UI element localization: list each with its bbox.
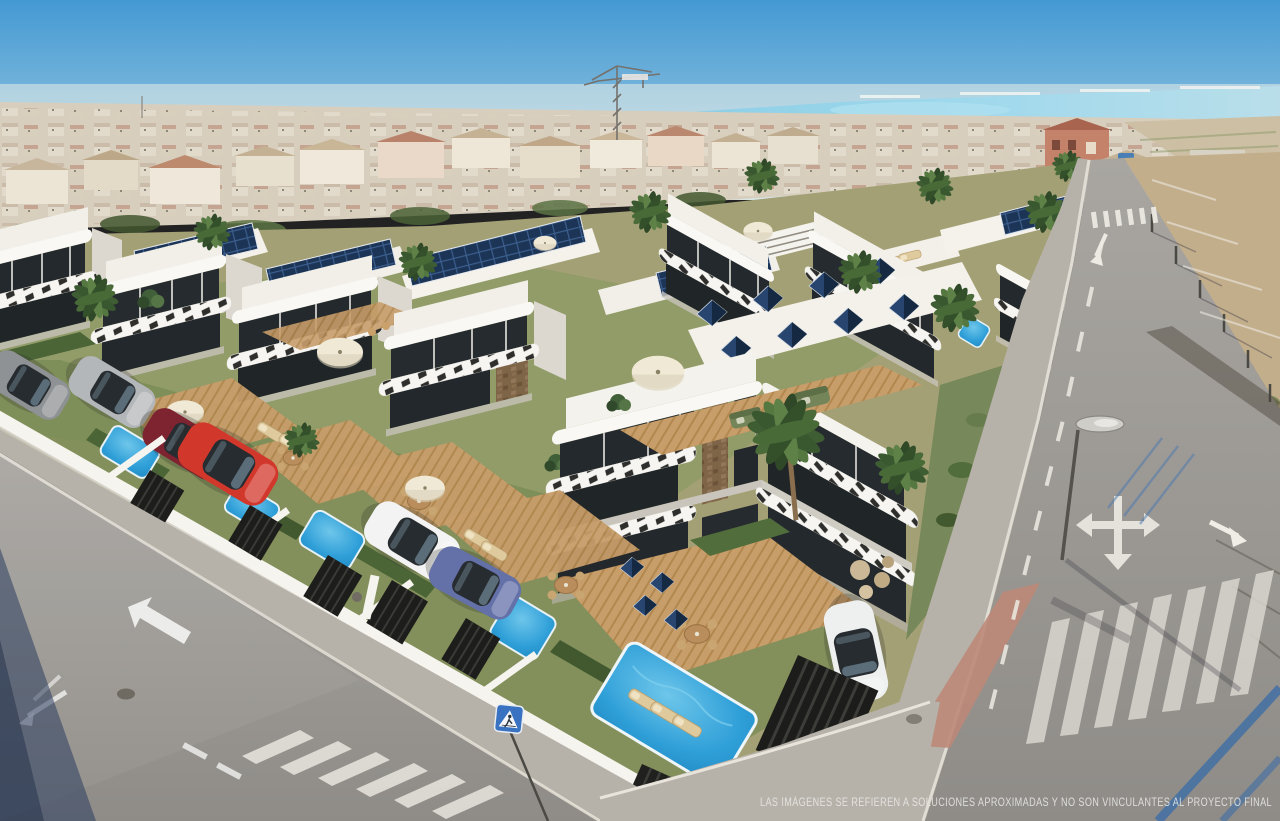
roof-umbrella [632,356,685,391]
manhole [906,714,922,724]
manhole [352,592,362,602]
aerial-render-scene: LAS IMÁGENES SE REFIEREN A SOLUCIONES AP… [0,0,1280,821]
roof-umbrella [317,338,363,369]
render-image: LAS IMÁGENES SE REFIEREN A SOLUCIONES AP… [0,0,1280,821]
manhole [117,689,135,700]
roof-umbrella [533,236,556,251]
disclaimer-text: LAS IMÁGENES SE REFIEREN A SOLUCIONES AP… [760,796,1272,809]
